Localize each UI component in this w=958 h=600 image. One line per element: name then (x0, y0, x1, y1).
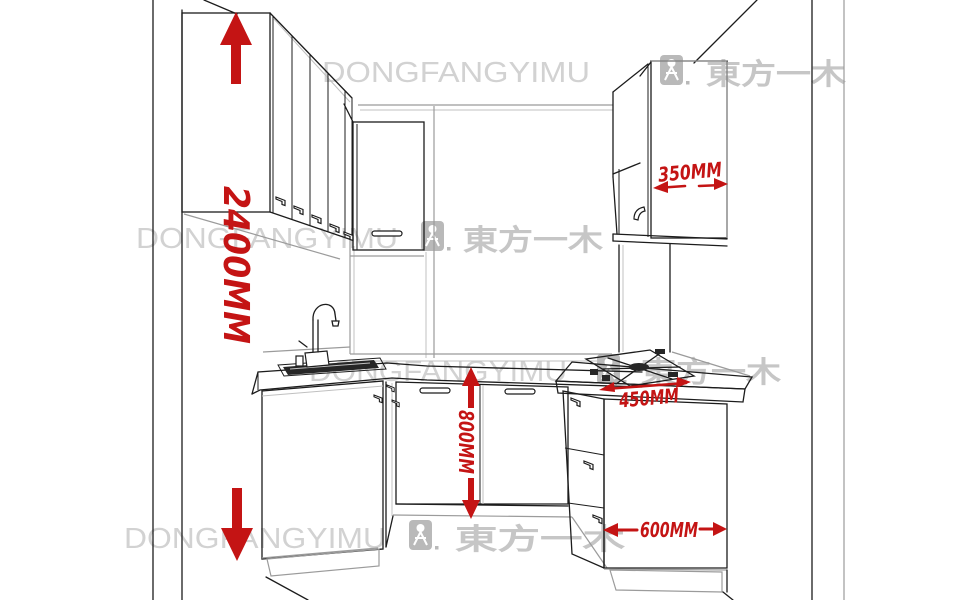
watermark-cjk-row2: 東方一木 (463, 223, 603, 257)
kitchen-perspective-svg: DONGFANGYIMU 東方一木 DONGFANGYIMU 東方一木 DONG… (0, 0, 958, 600)
cabinet-white-fills (182, 13, 752, 568)
door-handle-bar (505, 389, 535, 394)
door-handle-bar (372, 231, 402, 236)
kitchen-elevation-drawing: DONGFANGYIMU 東方一木 DONGFANGYIMU 東方一木 DONG… (0, 0, 958, 600)
door-handle-bar (420, 388, 450, 393)
watermark-logo-row2 (421, 221, 451, 251)
watermark-text-row1: DONGFANGYIMU (322, 57, 590, 89)
watermark-cjk-row4: 東方一木 (455, 522, 625, 556)
dim-base-cabinet-height: 800MM (454, 410, 478, 474)
watermark-logo-row4 (409, 520, 439, 550)
dim-base-cabinet-depth: 600MM (640, 518, 698, 542)
dim-ceiling-height: 2400MM (215, 186, 256, 344)
